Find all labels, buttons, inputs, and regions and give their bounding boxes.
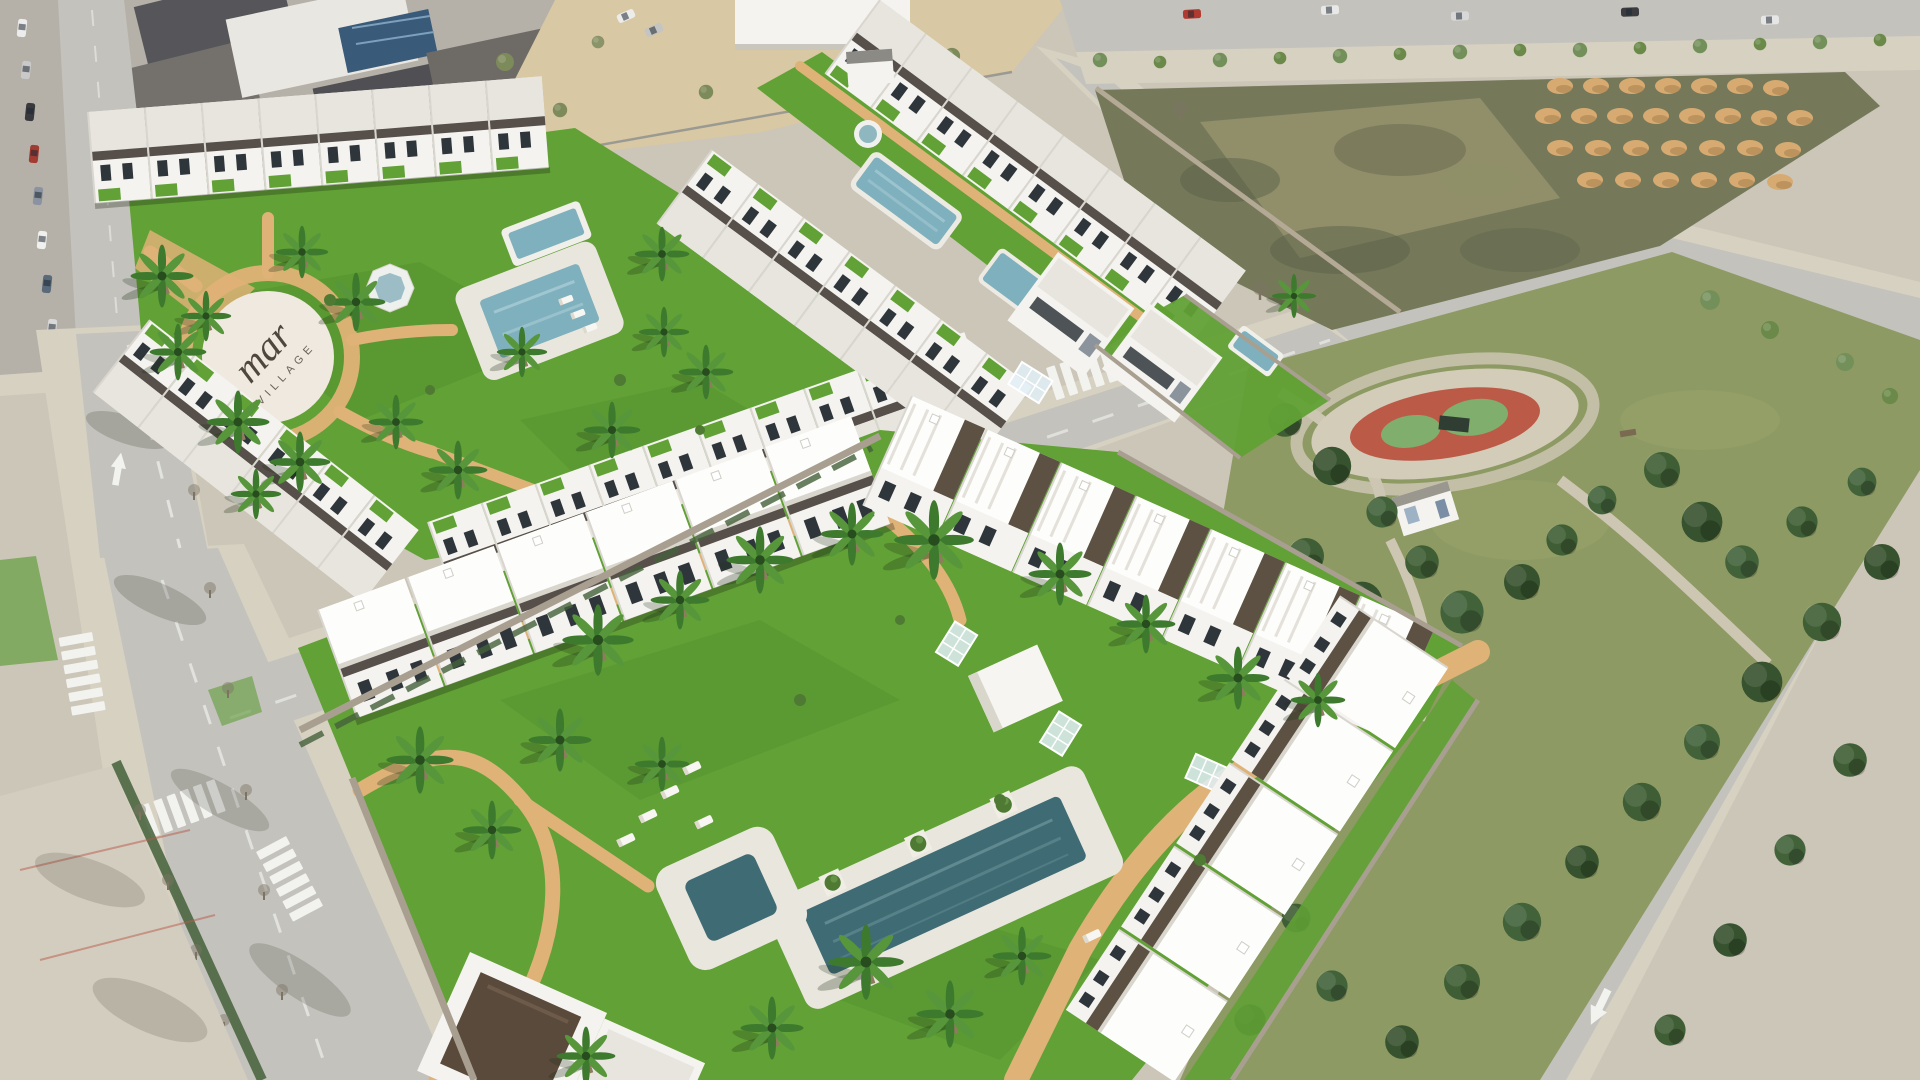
fountain-b [854, 120, 882, 148]
storage-hut [846, 49, 894, 86]
aerial-render: mar VILLAGE [0, 0, 1920, 1080]
scene: mar VILLAGE [0, 0, 1920, 1080]
